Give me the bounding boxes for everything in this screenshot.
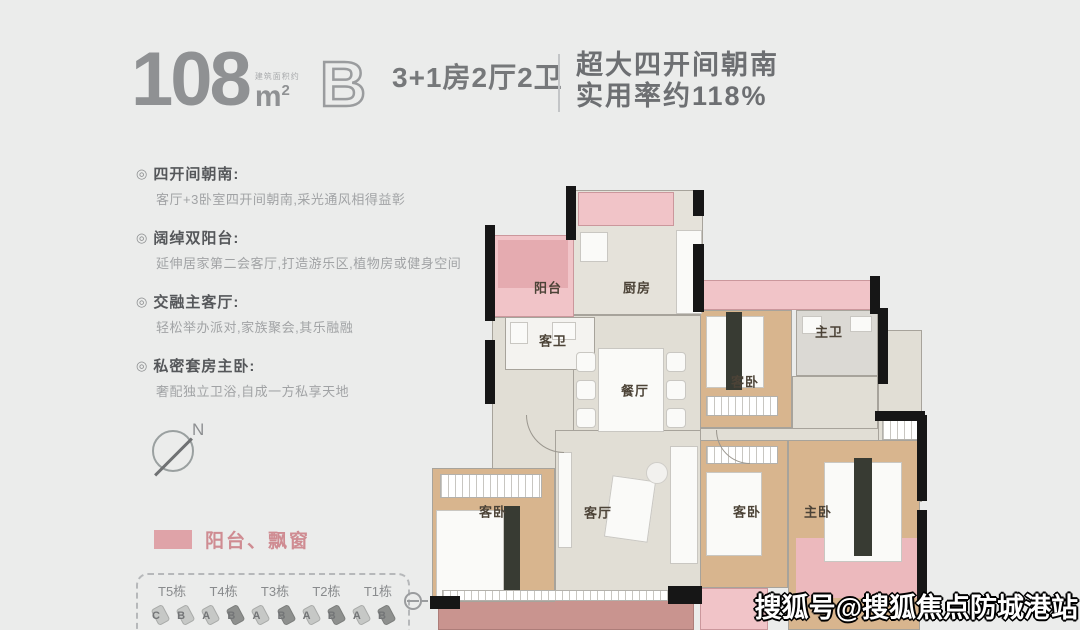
sofa bbox=[670, 446, 698, 564]
feature-title: 阔绰双阳台: bbox=[153, 227, 239, 248]
legend-pink-swatch bbox=[154, 530, 192, 549]
dining-chair bbox=[666, 408, 686, 428]
feature-desc: 轻松举办派对,家族聚会,其乐融融 bbox=[156, 317, 476, 336]
watermark: 搜狐号@搜狐焦点防城港站 bbox=[755, 586, 1078, 625]
tower-labels-row: T5栋 T4栋 T3栋 T2栋 T1栋 bbox=[138, 575, 408, 600]
living-window-strip bbox=[442, 590, 690, 601]
feature-head: ◎ 交融主客厅: bbox=[136, 291, 476, 312]
closet-bottom-left bbox=[440, 474, 542, 498]
site-marker-icon bbox=[404, 592, 422, 610]
unit-letter: B bbox=[227, 610, 235, 622]
wall-segment bbox=[485, 340, 495, 404]
feature-item: ◎ 阔绰双阳台: 延伸居家第二会客厅,打造游乐区,植物房或健身空间 bbox=[136, 227, 476, 272]
feature-item: ◎ 交融主客厅: 轻松举办派对,家族聚会,其乐融融 bbox=[136, 291, 476, 336]
wall-segment bbox=[430, 596, 460, 609]
header-area: 108 建筑面积约 m2 B bbox=[131, 44, 366, 116]
room-label-master-bath: 主卫 bbox=[815, 322, 843, 341]
header-slogan: 超大四开间朝南 实用率约118% bbox=[576, 50, 779, 112]
toilet bbox=[510, 322, 528, 344]
wall-segment bbox=[566, 186, 576, 240]
compass-north-label: N bbox=[192, 420, 204, 440]
feature-head: ◎ 阔绰双阳台: bbox=[136, 227, 476, 248]
wall-segment bbox=[878, 308, 888, 384]
bullet-icon: ◎ bbox=[136, 230, 147, 246]
plan-letter-badge: B bbox=[320, 54, 366, 114]
wall-segment bbox=[485, 225, 495, 321]
closet-top-right bbox=[706, 396, 778, 416]
header-divider bbox=[558, 54, 560, 112]
unit-cell: A bbox=[250, 602, 272, 630]
feature-title: 交融主客厅: bbox=[153, 291, 239, 312]
room-label-bedroom-mid-right: 客卧 bbox=[733, 502, 761, 521]
area-unit-sup: 2 bbox=[282, 82, 290, 99]
unit-cell: A bbox=[301, 602, 323, 630]
unit-cell: A bbox=[200, 602, 222, 630]
room-label-balcony: 阳台 bbox=[534, 278, 562, 297]
feature-list: ◎ 四开间朝南: 客厅+3卧室四开间朝南,采光通风相得益彰 ◎ 阔绰双阳台: 延… bbox=[136, 163, 476, 419]
wall-segment bbox=[917, 415, 927, 501]
unit-cell: B bbox=[175, 602, 197, 630]
dining-chair bbox=[576, 380, 596, 400]
bullet-icon: ◎ bbox=[136, 358, 147, 374]
room-label-guest-bath: 客卫 bbox=[539, 331, 567, 350]
legend-label: 阳台、飘窗 bbox=[205, 526, 310, 553]
dining-chair bbox=[576, 408, 596, 428]
bullet-icon: ◎ bbox=[136, 294, 147, 310]
tv-cabinet bbox=[558, 452, 572, 548]
dining-chair bbox=[576, 352, 596, 372]
unit-letter: B bbox=[177, 610, 185, 622]
room-label-kitchen: 厨房 bbox=[623, 278, 651, 297]
unit-cell: B bbox=[276, 602, 298, 630]
feature-title: 私密套房主卧: bbox=[153, 355, 255, 376]
legend: 阳台、飘窗 bbox=[154, 526, 310, 553]
tower-label: T1栋 bbox=[364, 581, 392, 600]
dining-chair bbox=[666, 352, 686, 372]
unit-letter: C bbox=[152, 610, 160, 622]
room-label-living: 客厅 bbox=[584, 503, 612, 522]
layout-spec: 3+1房2厅2卫 bbox=[392, 56, 563, 96]
fridge bbox=[580, 232, 608, 262]
kitchen-bay-window bbox=[578, 192, 674, 226]
feature-desc: 延伸居家第二会客厅,打造游乐区,植物房或健身空间 bbox=[156, 253, 476, 272]
slogan-line-2: 实用率约118% bbox=[576, 81, 779, 112]
tower-label: T3栋 bbox=[261, 581, 289, 600]
slogan-line-1: 超大四开间朝南 bbox=[576, 50, 779, 81]
floor-plan: 阳台 厨房 客卫 餐厅 客卧 主卫 客卧 客厅 客卧 主卧 bbox=[430, 180, 935, 630]
area-value: 108 bbox=[131, 44, 249, 116]
unit-letter: B bbox=[278, 610, 286, 622]
room-label-dining: 餐厅 bbox=[621, 381, 649, 400]
master-bath-toilet bbox=[850, 316, 872, 332]
wall-segment bbox=[668, 586, 702, 604]
unit-cell: B bbox=[326, 602, 348, 630]
promo-page: 108 建筑面积约 m2 B 3+1房2厅2卫 超大四开间朝南 实用率约118%… bbox=[0, 0, 1080, 630]
compass-circle-icon bbox=[152, 430, 194, 472]
dining-chair bbox=[666, 380, 686, 400]
feature-item: ◎ 私密套房主卧: 奢配独立卫浴,自成一方私享天地 bbox=[136, 355, 476, 400]
site-plan-strip: T5栋 T4栋 T3栋 T2栋 T1栋 C B A B A B A B A B bbox=[136, 573, 410, 630]
pouf bbox=[646, 462, 668, 484]
feature-title: 四开间朝南: bbox=[153, 163, 239, 184]
unit-cell: B bbox=[376, 602, 398, 630]
compass: N bbox=[152, 426, 198, 472]
unit-letter: A bbox=[202, 610, 210, 622]
unit-letter: A bbox=[303, 610, 311, 622]
unit-cell: C bbox=[150, 602, 172, 630]
unit-cell: B bbox=[225, 602, 247, 630]
unit-letter: B bbox=[378, 610, 386, 622]
wall-segment bbox=[693, 190, 704, 216]
area-unit: m2 bbox=[255, 82, 300, 112]
room-label-bedroom-bottom-left: 客卧 bbox=[479, 502, 507, 521]
room-label-master-bedroom: 主卧 bbox=[804, 502, 832, 521]
bed-bottom-left bbox=[436, 510, 504, 598]
unit-letter: A bbox=[252, 610, 260, 622]
top-right-bay-window bbox=[700, 280, 878, 310]
feature-desc: 奢配独立卫浴,自成一方私享天地 bbox=[156, 381, 476, 400]
unit-letter: B bbox=[328, 610, 336, 622]
room-label-bedroom-top-right: 客卧 bbox=[731, 372, 759, 391]
tower-label: T2栋 bbox=[312, 581, 340, 600]
bottom-balcony bbox=[438, 600, 694, 630]
bullet-icon: ◎ bbox=[136, 166, 147, 182]
area-unit-base: m bbox=[255, 80, 282, 113]
feature-item: ◎ 四开间朝南: 客厅+3卧室四开间朝南,采光通风相得益彰 bbox=[136, 163, 476, 208]
unit-letter: A bbox=[353, 610, 361, 622]
tower-label: T5栋 bbox=[158, 581, 186, 600]
feature-head: ◎ 四开间朝南: bbox=[136, 163, 476, 184]
wall-segment bbox=[693, 244, 704, 312]
wardrobe-master bbox=[854, 458, 872, 556]
area-unit-wrap: 建筑面积约 m2 bbox=[255, 73, 300, 112]
tower-label: T4栋 bbox=[209, 581, 237, 600]
feature-desc: 客厅+3卧室四开间朝南,采光通风相得益彰 bbox=[156, 189, 476, 208]
unit-letters-row: C B A B A B A B A B bbox=[138, 602, 408, 630]
unit-cell: A bbox=[351, 602, 373, 630]
feature-head: ◎ 私密套房主卧: bbox=[136, 355, 476, 376]
